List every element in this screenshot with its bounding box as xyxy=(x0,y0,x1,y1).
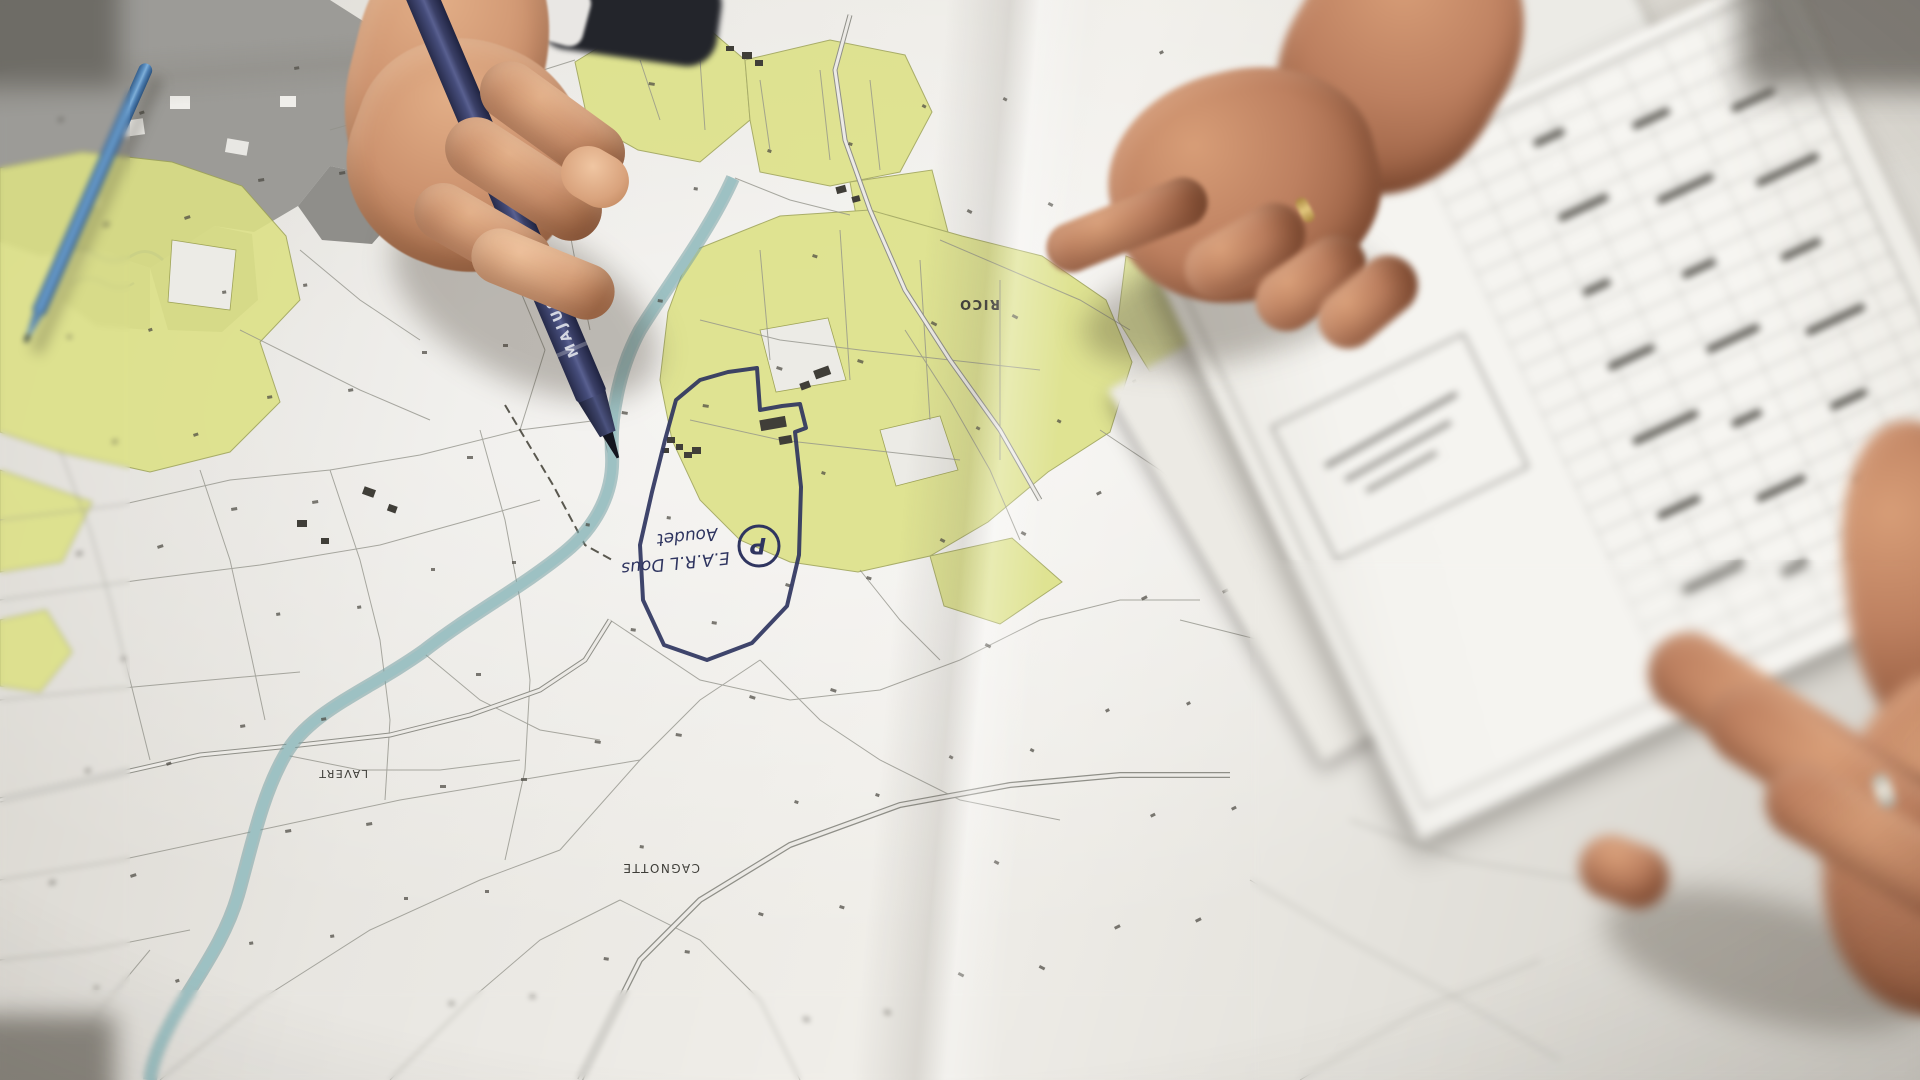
document-entry-mark xyxy=(1656,172,1714,204)
document-entry-mark xyxy=(1681,258,1717,280)
document-entry-mark xyxy=(1632,107,1671,130)
place-label-lavert: LAVERT xyxy=(318,767,368,780)
document-entry-mark xyxy=(1780,237,1822,262)
document-entry-mark xyxy=(1632,409,1699,445)
document-entry-mark xyxy=(1657,494,1702,520)
document-entry-mark xyxy=(1780,559,1808,577)
annotation-line2: Aoudet xyxy=(655,523,720,549)
corner-shadow-top-left xyxy=(0,0,120,85)
document-entry-mark xyxy=(1706,323,1761,353)
circled-letter: P xyxy=(750,532,766,557)
document-entry-mark xyxy=(1731,408,1763,428)
place-label-cagnotte: CAGNOTTE xyxy=(622,861,700,875)
photograph-of-people-reviewing-cadastral-map: LAVERT CAGNOTTE RICO P E.A.R.L Dous Aoud… xyxy=(0,0,1920,1080)
document-entry-mark xyxy=(1756,474,1807,503)
ballpoint-pen-point xyxy=(23,334,30,343)
corner-shadow-top-right xyxy=(1740,0,1920,90)
document-entry-mark xyxy=(1557,193,1609,222)
document-entry-mark xyxy=(1533,127,1566,147)
annotation-line1: E.A.R.L Dous xyxy=(620,547,730,578)
document-entry-mark xyxy=(1805,303,1866,336)
document-entry-mark xyxy=(1730,86,1776,112)
document-entry-mark xyxy=(1607,344,1655,371)
document-entry-mark xyxy=(1582,278,1611,297)
document-entry-mark xyxy=(1830,388,1868,411)
corner-shadow-bottom-left xyxy=(0,1015,115,1080)
document-entry-mark xyxy=(1755,152,1820,187)
document-entry-mark xyxy=(1681,560,1745,595)
